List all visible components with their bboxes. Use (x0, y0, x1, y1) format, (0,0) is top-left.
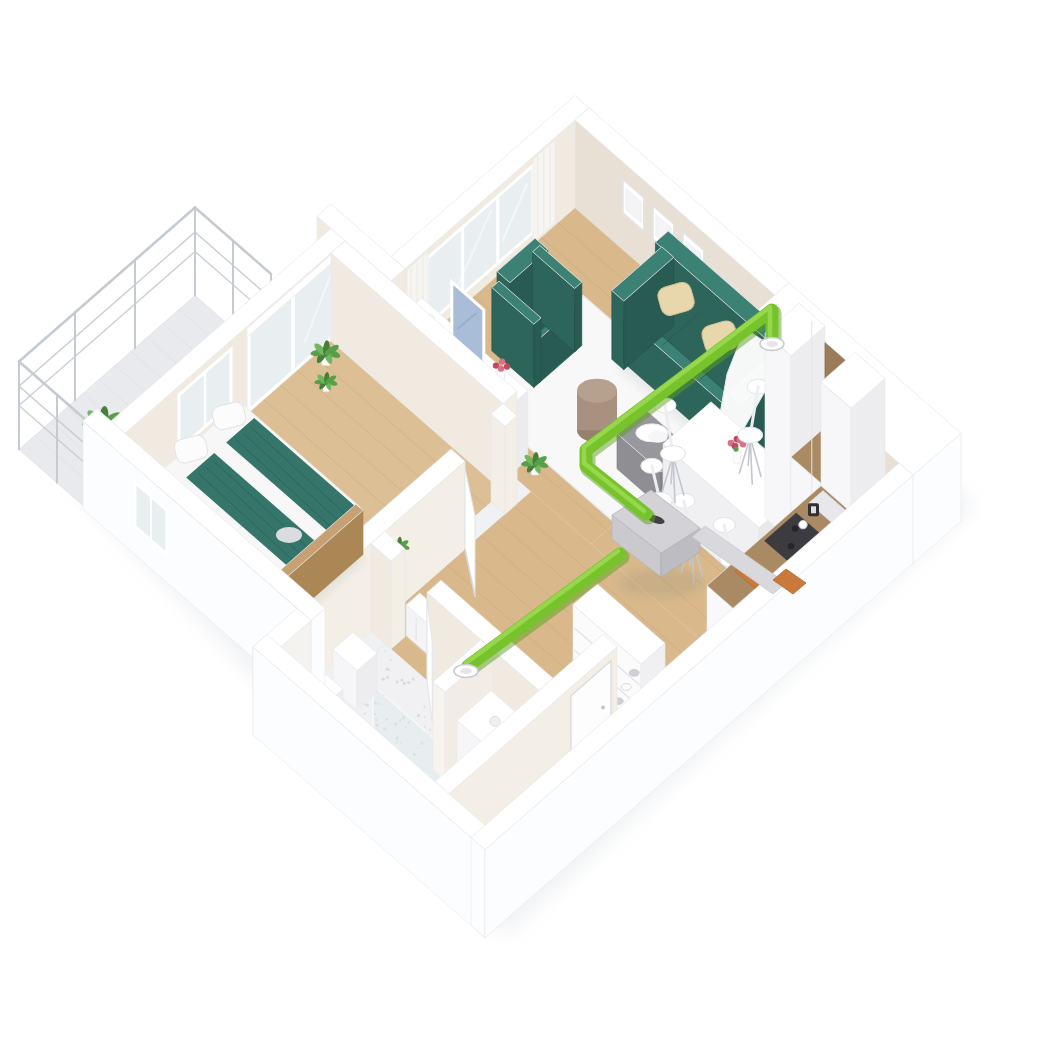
cooking-pot (799, 520, 807, 528)
folded-blanket (276, 527, 302, 543)
extract-air-diffuser (454, 665, 478, 678)
wall-bathroom-north-a (371, 531, 405, 649)
shoe (621, 684, 631, 691)
wall-bedroom-hall-a (491, 404, 517, 515)
floor-plan-canvas (0, 0, 1054, 1054)
door-handle (601, 705, 605, 709)
apartment-3d-floor-plan (0, 0, 1054, 1054)
shoe (629, 670, 639, 677)
sink-basin (490, 716, 500, 726)
supply-air-diffuser (760, 338, 784, 351)
